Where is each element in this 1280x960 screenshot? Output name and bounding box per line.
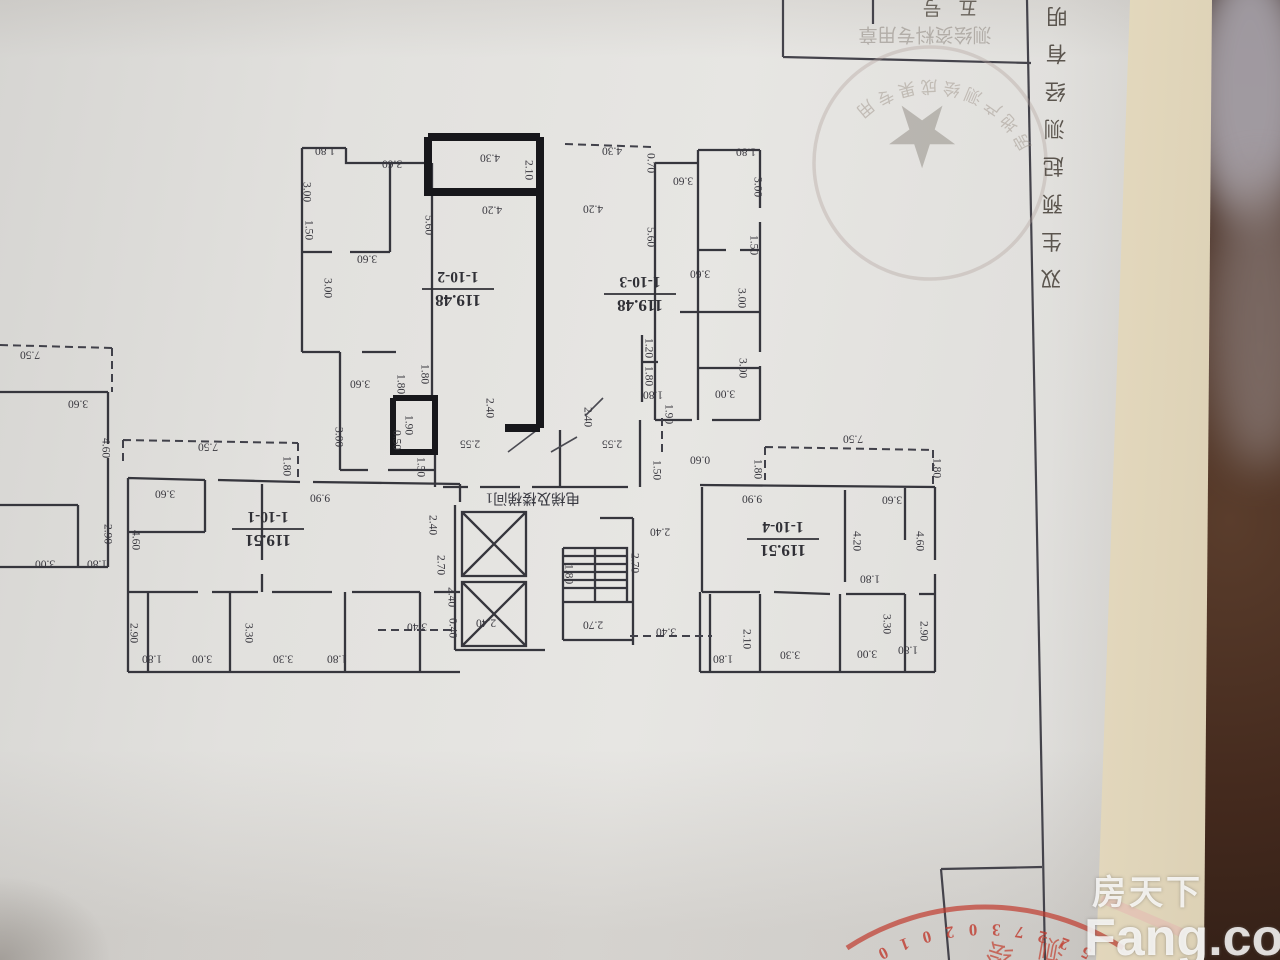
svg-text:1-10-2: 1-10-2 <box>437 268 479 285</box>
dimension-label: 1.50 <box>650 460 662 480</box>
dimension-label: 1.80 <box>643 388 663 400</box>
dimension-label: 3.40 <box>407 620 427 632</box>
dimension-label: 3.60 <box>673 174 693 186</box>
dimension-label: 2.90 <box>917 621 929 641</box>
floorplan-drawing: ★ 房地产测绘成果专用 测绘资料专用章 5227302010 测绘 1.803.… <box>0 0 1280 960</box>
dashed-lines <box>0 144 933 636</box>
top-cut-characters: 号五 <box>922 0 977 18</box>
dimension-label: 3.30 <box>242 623 254 643</box>
frame-side-char: 预 <box>1042 192 1063 216</box>
dimension-label: 1.80 <box>713 652 733 664</box>
dimension-label: 3.30 <box>273 652 293 664</box>
dimension-label: 2.70 <box>583 618 603 630</box>
dimension-label: 5.60 <box>644 227 656 247</box>
dimension-label: 3.40 <box>656 625 676 637</box>
dimension-label: 1.80 <box>87 557 107 569</box>
dimension-label: 3.30 <box>780 648 800 660</box>
stamp-digit: 7 <box>1013 922 1025 942</box>
floorplan-photo: ★ 房地产测绘成果专用 测绘资料专用章 5227302010 测绘 1.803.… <box>0 0 1280 960</box>
dimension-label: 3.00 <box>332 427 344 447</box>
dimension-label: 9.90 <box>310 491 330 503</box>
frame-side-char: 测 <box>1044 117 1065 141</box>
dimension-label: 2.90 <box>127 623 139 643</box>
dimension-label: 2.70 <box>628 553 640 573</box>
svg-text:119.48: 119.48 <box>617 296 663 315</box>
dimension-label: 3.00 <box>300 182 312 202</box>
svg-text:1-10-4: 1-10-4 <box>762 518 804 535</box>
stamp-digit: 3 <box>991 920 1000 939</box>
dimension-label: 0.40 <box>446 618 458 638</box>
svg-text:119.48: 119.48 <box>435 291 481 310</box>
dimension-label: 3.00 <box>736 358 748 378</box>
dimension-label: 1.50 <box>302 220 314 240</box>
dimension-label: 1.80 <box>562 564 574 584</box>
dimension-label: 4.30 <box>602 144 622 156</box>
dimension-label: 1.20 <box>642 338 654 358</box>
dimension-label: 1.80 <box>860 572 880 584</box>
dimension-label: 4.30 <box>480 151 500 163</box>
dimension-label: 3.00 <box>192 652 212 664</box>
svg-text:1-10-1: 1-10-1 <box>247 508 288 525</box>
dimension-label: 3.60 <box>882 493 902 505</box>
dimension-label: 3.00 <box>321 278 333 298</box>
dimension-label: 3.00 <box>751 177 763 197</box>
dimension-label: 4.20 <box>482 203 502 215</box>
unit-label-1-10-1: 119.511-10-1 <box>232 508 304 550</box>
svg-text:1-10-3: 1-10-3 <box>619 273 661 290</box>
dimension-label: 5.60 <box>422 215 434 235</box>
dimension-label: 3.00 <box>35 557 55 569</box>
dimension-label: 9.90 <box>742 492 762 504</box>
dimension-label: 1.80 <box>898 643 918 655</box>
dimension-label: 3.60 <box>382 157 402 169</box>
dimension-label: 1.50 <box>747 235 759 255</box>
dimension-label: 1.50 <box>414 457 426 477</box>
dimension-label: 2.40 <box>650 525 670 537</box>
stamp-digit: 0 <box>920 927 933 948</box>
dimension-label: 4.60 <box>913 531 925 551</box>
dimension-label: 3.00 <box>735 288 747 308</box>
dimension-label: 2.70 <box>434 555 446 575</box>
core-label: 电梯及楼梯间1 <box>486 490 580 507</box>
dimension-label: 3.60 <box>690 267 710 279</box>
stamp-inner-char: 绘 <box>982 937 1016 960</box>
dimension-label: 0.60 <box>690 453 710 465</box>
dimension-label: 4.20 <box>583 202 603 214</box>
dimension-label: 1.80 <box>736 145 756 157</box>
dimension-label: 3.00 <box>857 647 877 659</box>
stamp-digit: 2 <box>944 922 955 942</box>
dimension-label: 2.55 <box>460 437 480 449</box>
dimension-label: 2.10 <box>522 160 534 180</box>
dimension-label: 1.80 <box>751 459 763 479</box>
dimension-label: 2.90 <box>101 524 113 544</box>
dimension-label: 2.40 <box>483 398 495 418</box>
dimension-label: 3.30 <box>880 614 892 634</box>
stamp-inner-char: 测 <box>1036 932 1067 960</box>
dimension-labels: 1.803.003.601.503.603.003.603.004.302.10… <box>20 144 943 664</box>
dimension-label: 3.60 <box>68 397 88 409</box>
dimension-label: 4.60 <box>99 438 111 458</box>
dimension-label: 4.60 <box>129 530 141 550</box>
frame-side-char: 经 <box>1045 79 1066 103</box>
unit-label-1-10-3: 119.481-10-3 <box>604 273 676 315</box>
dimension-label: 3.60 <box>357 252 377 264</box>
walls <box>0 148 935 672</box>
dimension-label: 1.80 <box>280 456 292 476</box>
dimension-label: 1.80 <box>418 364 430 384</box>
svg-text:119.51: 119.51 <box>760 541 806 560</box>
dimension-label: 1.80 <box>142 652 162 664</box>
dimension-label: 0.70 <box>644 153 656 173</box>
frame-side-char: 明 <box>1047 4 1068 28</box>
watermark-english: Fang.com <box>1084 912 1280 960</box>
stamp-digit: 0 <box>875 943 891 960</box>
dimension-label: 2.55 <box>602 437 622 449</box>
watermark-chinese: 房天下 <box>1092 876 1280 910</box>
dimension-label: 1.90 <box>662 404 674 424</box>
dimension-label: 2.40 <box>581 407 593 427</box>
dimension-label: 3.00 <box>715 387 735 399</box>
dimension-label: 4.20 <box>850 531 862 551</box>
dimension-label: 1.80 <box>394 374 406 394</box>
dimension-label: 1.80 <box>642 366 654 386</box>
unit-label-1-10-4: 119.511-10-4 <box>747 518 819 560</box>
stamp-digit: 1 <box>897 934 912 955</box>
stamp-row-text: 测绘资料专用章 <box>858 24 991 46</box>
dimension-label: 2.10 <box>740 629 752 649</box>
dimension-label: 2.40 <box>476 616 496 628</box>
dimension-label: 3.60 <box>350 377 370 389</box>
dimension-label: 7.50 <box>20 348 40 360</box>
frame-side-char: 双 <box>1040 267 1061 291</box>
top-cut-char: 五 <box>958 0 977 18</box>
frame-side-char: 起 <box>1043 154 1064 178</box>
dimension-label: 1.80 <box>327 652 347 664</box>
dimension-label: 7.50 <box>198 440 218 452</box>
elevator-stair-label: 电梯及楼梯间1 <box>486 490 580 507</box>
dimension-label: 1.90 <box>402 415 414 435</box>
stamp-digit: 0 <box>968 920 977 939</box>
dimension-label: 2.40 <box>445 587 457 607</box>
svg-text:119.51: 119.51 <box>245 531 291 550</box>
dimension-label: 1.80 <box>930 458 942 478</box>
site-watermark: 房天下 Fang.com <box>1084 876 1280 960</box>
dimension-label: 2.40 <box>426 515 438 535</box>
dimension-label: 7.50 <box>843 432 863 444</box>
dimension-label: 0.50 <box>390 430 402 450</box>
dimension-label: 1.80 <box>315 144 335 156</box>
dimension-label: 3.60 <box>155 487 175 499</box>
top-cut-char: 号 <box>922 0 941 18</box>
frame-side-char: 有 <box>1046 42 1067 66</box>
frame-side-char: 生 <box>1041 229 1062 253</box>
